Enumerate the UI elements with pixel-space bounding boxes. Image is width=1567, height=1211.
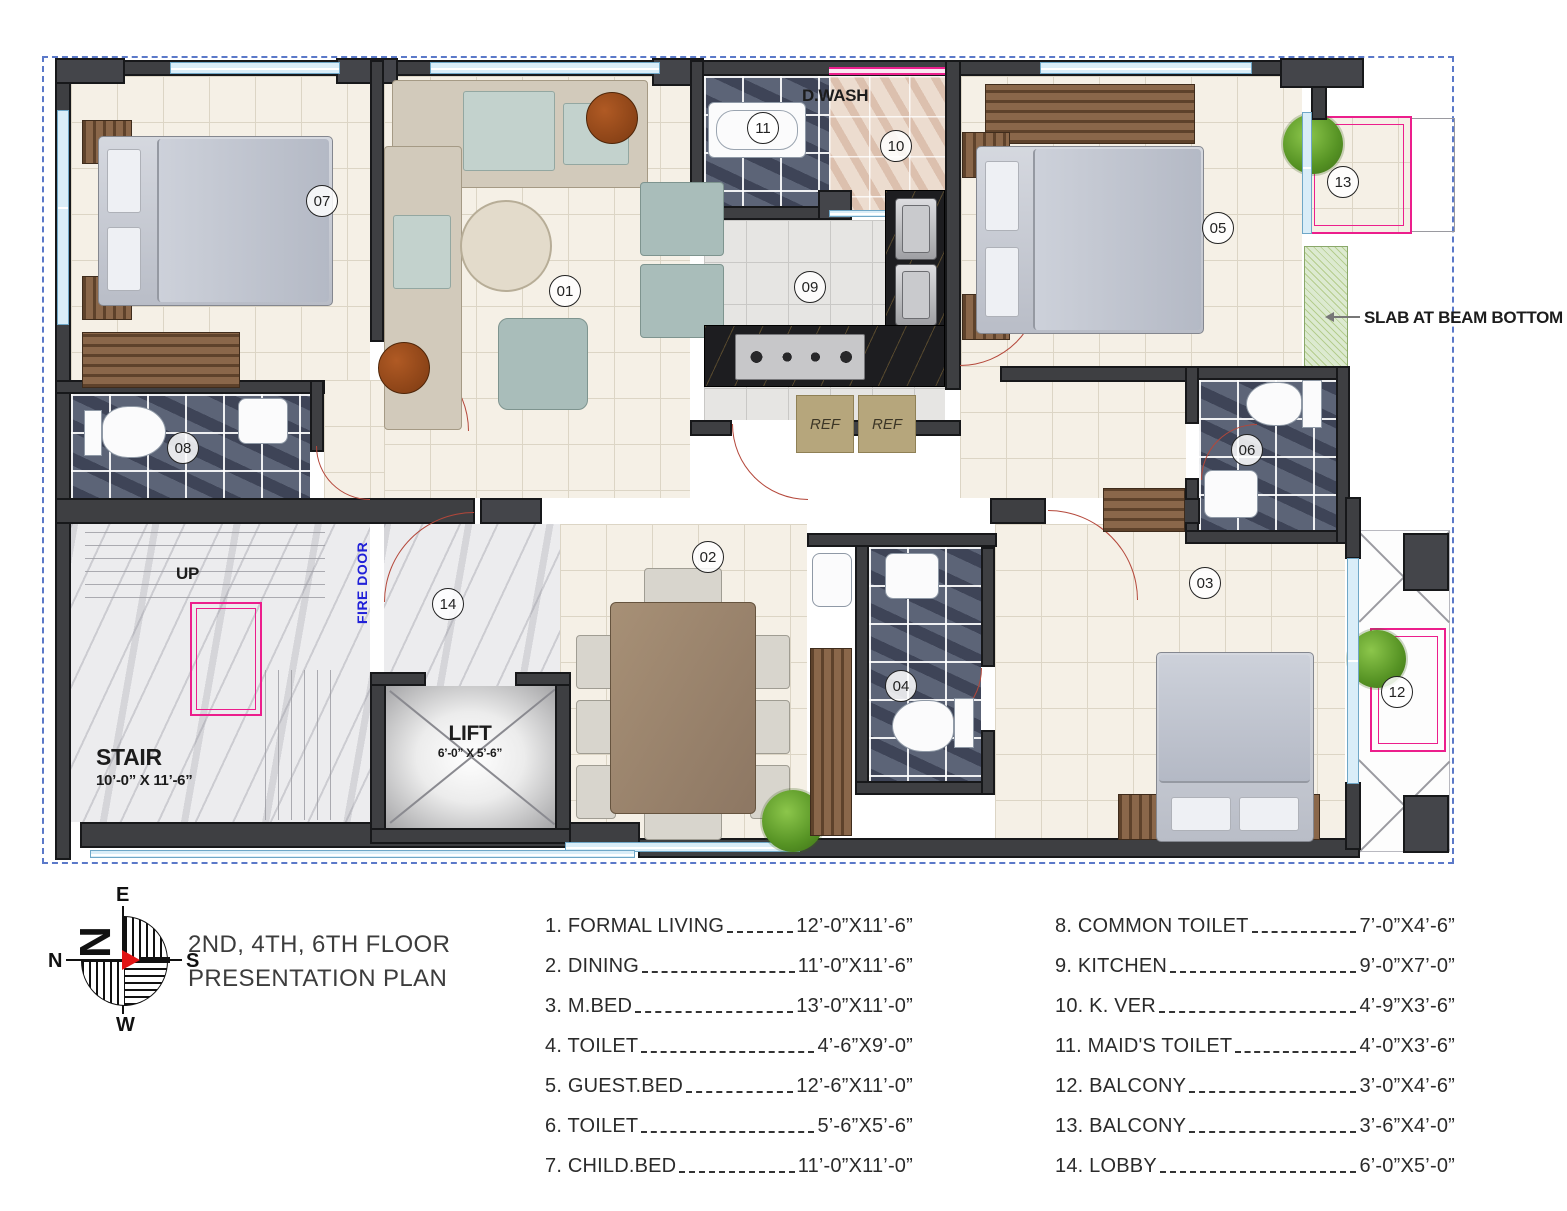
wall [1345, 782, 1361, 850]
wall [370, 60, 384, 342]
refrigerator: REF [858, 395, 916, 453]
room-marker-10: 10 [880, 130, 912, 162]
room-marker-07: 07 [306, 185, 338, 217]
refrigerator: REF [796, 395, 854, 453]
room-marker-13: 13 [1327, 166, 1359, 198]
legend-item: 11. MAID'S TOILET4’-0”X3’-6” [1055, 1035, 1455, 1058]
wall-lift [555, 672, 571, 844]
dining-chair [644, 568, 722, 606]
legend-label: 6. TOILET [545, 1115, 638, 1138]
legend-dim: 3’-6”X4’-0” [1359, 1115, 1455, 1138]
stair-treads [265, 670, 335, 820]
legend-dim: 4’-9”X3’-6” [1359, 995, 1455, 1018]
legend-leader [641, 1131, 814, 1133]
dining-table [610, 602, 756, 814]
dresser-childbed [82, 332, 240, 388]
slab-arrowhead [1325, 312, 1334, 322]
legend-label: 12. BALCONY [1055, 1075, 1186, 1098]
compass-needle-icon [122, 950, 140, 970]
stair-landing-outline-inner [196, 608, 256, 710]
legend-leader [641, 1051, 814, 1053]
legend-label: 3. M.BED [545, 995, 632, 1018]
bench [1103, 488, 1185, 532]
legend-dim: 12’-0”X11’-6” [796, 915, 913, 938]
legend-dim: 12’-6”X11’-0” [796, 1075, 913, 1098]
wall-pier [55, 58, 125, 84]
legend-right: 8. COMMON TOILET7’-0”X4’-6” 9. KITCHEN9’… [1055, 915, 1455, 1178]
kitchen-sink [895, 264, 937, 326]
slab-arrow [1332, 316, 1360, 318]
legend-label: 9. KITCHEN [1055, 955, 1167, 978]
lift-label: LIFT [400, 722, 540, 746]
wall [807, 533, 997, 547]
legend-leader [1170, 971, 1356, 973]
room-marker-03: 03 [1189, 567, 1221, 599]
legend-dim: 3’-0”X4’-6” [1359, 1075, 1455, 1098]
compass-north: N [48, 950, 62, 973]
floorplan-page: { "title": { "line1": "2ND, 4TH, 6TH FLO… [0, 0, 1567, 1211]
wall [1000, 366, 1190, 382]
dining-chair [750, 635, 790, 689]
coffee-table [460, 200, 552, 292]
wall [690, 420, 732, 436]
wall-lift [370, 672, 386, 844]
wall [55, 512, 71, 860]
legend-leader [1159, 1011, 1357, 1013]
ref-label: REF [872, 416, 902, 433]
wall [990, 498, 1046, 524]
armchair [498, 318, 588, 410]
legend-label: 11. MAID'S TOILET [1055, 1035, 1232, 1058]
legend-item: 13. BALCONY3’-6”X4’-0” [1055, 1115, 1455, 1138]
legend-item: 5. GUEST.BED12’-6”X11’-0” [545, 1075, 913, 1098]
toilet-tank [954, 698, 974, 748]
wall-lift [370, 672, 426, 686]
balcony12-pier-bottom [1403, 795, 1449, 853]
fire-door-label: FIRE DOOR [354, 528, 370, 624]
legend-dim: 13’-0”X11’-0” [796, 995, 913, 1018]
room-marker-04: 04 [885, 670, 917, 702]
legend-item: 9. KITCHEN9’-0”X7’-0” [1055, 955, 1455, 978]
room-marker-01: 01 [549, 275, 581, 307]
floor-corridor-right [960, 366, 1186, 498]
compass-east: E [116, 884, 129, 907]
dining-chair [644, 810, 722, 840]
room-marker-09: 09 [794, 271, 826, 303]
dwash-label: D.WASH [802, 86, 868, 106]
plant-balcony13 [1283, 114, 1343, 174]
legend-label: 10. K. VER [1055, 995, 1156, 1018]
legend-item: 6. TOILET5’-6”X5’-6” [545, 1115, 913, 1138]
pouf [378, 342, 430, 394]
floor-plan: SLAB AT BEAM BOTTOM [40, 50, 1460, 875]
legend-item: 3. M.BED13’-0”X11’-0” [545, 995, 913, 1018]
plan-title: 2ND, 4TH, 6TH FLOOR PRESENTATION PLAN [188, 928, 450, 996]
bed-guest [976, 146, 1204, 334]
window [57, 110, 69, 325]
kver-magenta-line [829, 67, 945, 75]
legend-label: 13. BALCONY [1055, 1115, 1186, 1138]
legend-label: 1. FORMAL LIVING [545, 915, 724, 938]
stair-dim: 10’-0” X 11’-6” [96, 772, 192, 789]
room-marker-05: 05 [1202, 212, 1234, 244]
pouf [586, 92, 638, 144]
legend-label: 8. COMMON TOILET [1055, 915, 1249, 938]
legend-item: 1. FORMAL LIVING12’-0”X11’-6” [545, 915, 913, 938]
wall [981, 730, 995, 795]
legend-item: 10. K. VER4’-9”X3’-6” [1055, 995, 1455, 1018]
wall [310, 380, 324, 452]
window [430, 62, 660, 74]
legend-dim: 7’-0”X4’-6” [1359, 915, 1455, 938]
plan-title-line1: 2ND, 4TH, 6TH FLOOR [188, 928, 450, 962]
room-marker-08: 08 [167, 432, 199, 464]
legend-leader [635, 1011, 793, 1013]
washbasin [812, 553, 852, 607]
sideboard [810, 648, 852, 836]
compass-needle-bar [140, 957, 170, 963]
window [1347, 558, 1359, 784]
legend-leader [686, 1091, 793, 1093]
legend-label: 7. CHILD.BED [545, 1155, 676, 1178]
window [1302, 112, 1312, 234]
wall [1185, 530, 1350, 544]
legend-leader [1189, 1131, 1356, 1133]
legend-leader [1160, 1171, 1357, 1173]
room-marker-11: 11 [747, 112, 779, 144]
legend-item: 12. BALCONY3’-0”X4’-6” [1055, 1075, 1455, 1098]
wall [1185, 366, 1199, 424]
legend-item: 2. DINING11’-0”X11’-6” [545, 955, 913, 978]
plan-title-line2: PRESENTATION PLAN [188, 962, 450, 996]
legend-dim: 9’-0”X7’-0” [1359, 955, 1455, 978]
wall [855, 781, 995, 795]
room-marker-06: 06 [1231, 434, 1263, 466]
wall [855, 545, 869, 795]
up-label: UP [176, 564, 199, 584]
legend-left: 1. FORMAL LIVING12’-0”X11’-6” 2. DINING1… [545, 915, 913, 1178]
balcony12-pier-top [1403, 533, 1449, 591]
bed-master [1156, 652, 1314, 842]
stove [735, 334, 865, 380]
toilet-tank [84, 410, 102, 456]
bed-childbed [98, 136, 333, 306]
legend-leader [642, 971, 795, 973]
toilet-tank [1302, 380, 1322, 428]
toilet-bowl [1246, 382, 1302, 426]
dining-chair [750, 700, 790, 754]
room-marker-12: 12 [1381, 676, 1413, 708]
wardrobe-guest [985, 84, 1195, 144]
window [170, 62, 340, 74]
compass-west: W [116, 1014, 135, 1037]
legend-leader [1235, 1051, 1356, 1053]
legend-dim: 11’-0”X11’-0” [798, 1155, 913, 1178]
window [1040, 62, 1252, 74]
legend-item: 8. COMMON TOILET7’-0”X4’-6” [1055, 915, 1455, 938]
legend-dim: 11’-0”X11’-6” [798, 955, 913, 978]
stair-treads [85, 532, 325, 610]
toilet-bowl [892, 700, 954, 752]
washbasin [885, 553, 939, 599]
stair-label: STAIR [96, 744, 162, 771]
legend-dim: 4’-0”X3’-6” [1359, 1035, 1455, 1058]
room-marker-14: 14 [432, 588, 464, 620]
ref-label: REF [810, 416, 840, 433]
legend-leader [679, 1171, 794, 1173]
slab-label: SLAB AT BEAM BOTTOM [1364, 308, 1563, 328]
wall [1185, 366, 1350, 380]
legend-dim: 4’-6”X9’-0” [817, 1035, 913, 1058]
wall [981, 547, 995, 667]
wall-pier [336, 58, 398, 84]
washbasin [238, 398, 288, 444]
toilet-bowl [102, 406, 166, 458]
wall-pier [480, 498, 542, 524]
wall-lift [515, 672, 571, 686]
wall [1345, 497, 1361, 559]
legend-label: 4. TOILET [545, 1035, 638, 1058]
compass: N E W N S [52, 892, 192, 1027]
legend-label: 2. DINING [545, 955, 639, 978]
compass-needle-letter: N [74, 926, 114, 958]
wall-lift [370, 828, 571, 844]
legend-dim: 5’-6”X5’-6” [817, 1115, 913, 1138]
wall [945, 60, 961, 390]
legend-dim: 6’-0”X5’-0” [1359, 1155, 1455, 1178]
ottoman [640, 182, 724, 256]
legend-item: 14. LOBBY6’-0”X5’-0” [1055, 1155, 1455, 1178]
lift-label-group: LIFT 6’-0” X 5’-6” [400, 722, 540, 760]
legend-item: 7. CHILD.BED11’-0”X11’-0” [545, 1155, 913, 1178]
washbasin [1204, 470, 1258, 518]
wall [55, 498, 475, 524]
legend-leader [1252, 931, 1357, 933]
compass-fan-sw [81, 961, 125, 1006]
window [90, 850, 635, 858]
legend-label: 14. LOBBY [1055, 1155, 1157, 1178]
legend-leader [727, 931, 793, 933]
kitchen-sink [895, 198, 937, 260]
wall-pier [1280, 58, 1364, 88]
legend-item: 4. TOILET4’-6”X9’-0” [545, 1035, 913, 1058]
nightstand [1118, 794, 1158, 840]
room-marker-02: 02 [692, 541, 724, 573]
legend-leader [1189, 1091, 1356, 1093]
legend-label: 5. GUEST.BED [545, 1075, 683, 1098]
lift-dim: 6’-0” X 5’-6” [400, 746, 540, 760]
